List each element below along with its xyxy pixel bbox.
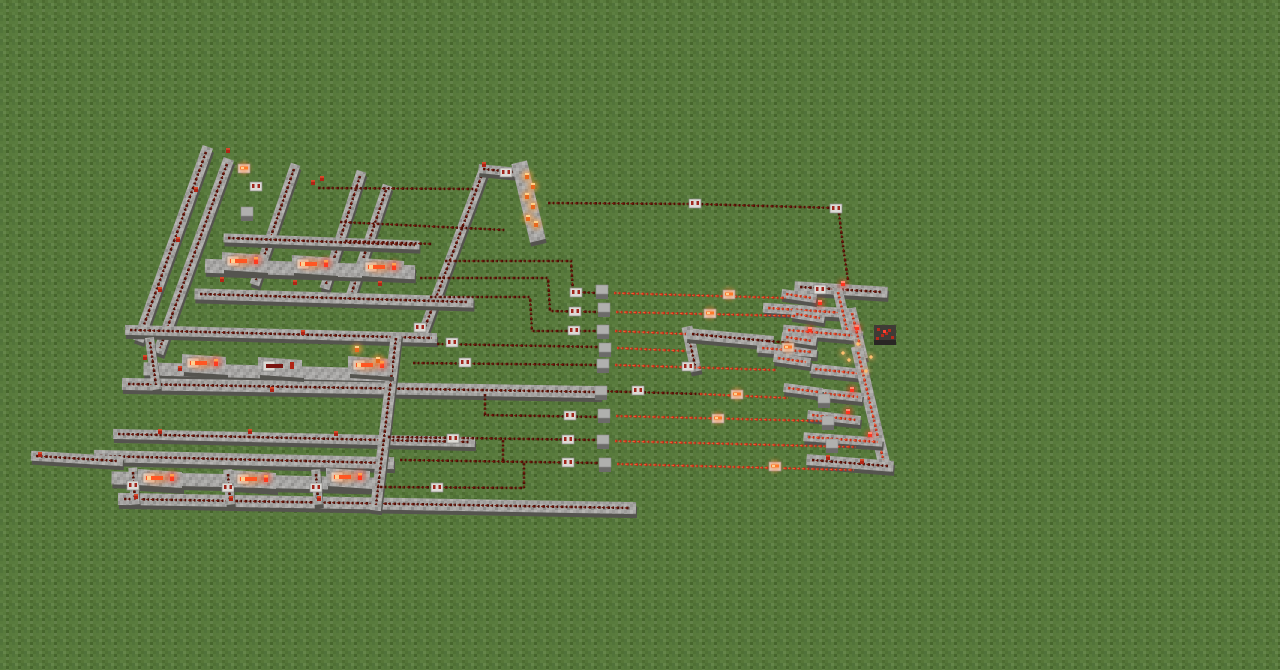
redstone-repeater [500, 168, 512, 177]
repeater-torch [822, 287, 825, 291]
torch-tip [826, 455, 830, 457]
stone-block-top [598, 303, 610, 312]
redstone-repeater [459, 358, 471, 367]
repeater-torch [258, 184, 261, 188]
stone-block-side [597, 334, 609, 339]
torch-flame [525, 173, 529, 175]
stone-block-side [818, 403, 830, 408]
repeater-torch [570, 328, 573, 332]
stone-path [150, 342, 157, 389]
stone-block [826, 439, 838, 453]
redstone-torch [301, 330, 305, 335]
torch-tip [293, 280, 297, 282]
stone-block [595, 386, 607, 400]
unit-torch-flame [231, 259, 235, 263]
redstone-torch [320, 176, 324, 181]
repeater-unit [222, 252, 268, 277]
redstone-torch [226, 148, 230, 153]
repeater-top [500, 168, 512, 177]
repeater-torch [570, 437, 573, 441]
torch-tip [194, 187, 198, 189]
glow-particle [867, 353, 875, 361]
repeater-torch [832, 206, 835, 210]
repeater-unit [360, 258, 406, 283]
repeater-torch [461, 360, 464, 364]
stone-path [200, 294, 469, 306]
redstone-torch [293, 280, 297, 285]
repeater-torch [455, 436, 458, 440]
repeater-torch [449, 436, 452, 440]
stone-block [599, 343, 611, 357]
redstone-repeater [447, 434, 459, 443]
redstone-torch [843, 407, 853, 417]
stone-block [599, 458, 611, 472]
repeater-torch [433, 485, 436, 489]
torch-tip [226, 148, 230, 150]
torch-tip [248, 429, 252, 431]
torch-tip [134, 494, 138, 496]
repeater-top [431, 483, 443, 492]
redstone-repeater [712, 412, 724, 424]
redstone-repeater [632, 386, 644, 395]
repeater-top [564, 411, 576, 420]
torch-flame [846, 409, 850, 411]
redstone-torch [860, 459, 864, 464]
unit-torch-bar-off [266, 364, 283, 368]
redstone-torch [158, 429, 162, 434]
repeater-top [814, 285, 826, 294]
torch-tip [178, 366, 182, 368]
stone-block-top [599, 343, 611, 352]
repeater-torch [571, 309, 574, 313]
torch-flame [526, 215, 530, 217]
ore-spot [877, 328, 880, 331]
repeater-torch [816, 287, 819, 291]
unit-torch-flame [191, 361, 195, 365]
repeater-torch [508, 170, 511, 174]
unit-side-torch-flame [170, 474, 174, 477]
torch-flame [531, 203, 535, 205]
repeater-unit [292, 255, 338, 280]
repeater-top [414, 323, 426, 332]
glow-particle [839, 349, 847, 357]
repeater-torch [416, 325, 419, 329]
torch-flame [850, 387, 854, 389]
redstone-torch [826, 455, 830, 460]
repeater-top [570, 288, 582, 297]
redstone-repeater [431, 483, 443, 492]
repeater-torch [838, 206, 841, 210]
torch-tip [378, 281, 382, 283]
torch-tip [143, 355, 147, 357]
unit-side-torch-flame [264, 475, 268, 478]
repeater-top [632, 386, 644, 395]
repeater-top [569, 307, 581, 316]
redstone-repeater [782, 341, 794, 353]
redstone-torch [522, 171, 533, 182]
unit-torch-flame [335, 475, 339, 479]
repeater-torch [566, 413, 569, 417]
unit-side-torch-flame [358, 473, 362, 476]
torch-flame [818, 300, 822, 302]
redstone-torch [378, 281, 382, 286]
torch-flame [868, 432, 872, 434]
stone-block [597, 435, 609, 449]
stone-path [778, 358, 807, 366]
stone-block-side [597, 368, 609, 373]
stone-block-side [596, 294, 608, 299]
repeater-torch [312, 485, 315, 489]
repeater-top [310, 483, 322, 492]
stone-block-top [597, 325, 609, 334]
repeater-torch-flame [707, 312, 710, 314]
glow-particle [845, 356, 853, 364]
unit-side-torch-flame [214, 359, 218, 362]
repeater-top [446, 338, 458, 347]
ore-side [874, 340, 896, 345]
redstone-repeater [562, 458, 574, 467]
repeater-torch [570, 460, 573, 464]
minecraft-world-canvas [0, 0, 1280, 670]
repeater-torch [578, 290, 581, 294]
unit-side-torch-flame [392, 263, 396, 266]
stone-block [597, 325, 609, 339]
unit-torch-flame [369, 265, 373, 269]
torch-flame [855, 325, 859, 327]
repeater-torch-flame [241, 167, 244, 169]
redstone-torch [847, 385, 857, 395]
redstone-repeater [830, 204, 842, 213]
game-viewport[interactable] [0, 0, 1280, 670]
torch-tip [482, 162, 486, 164]
redstone-repeater [769, 460, 781, 472]
redstone-torch [311, 180, 315, 185]
redstone-repeater [564, 411, 576, 420]
torch-tip [860, 459, 864, 461]
redstone-torch [317, 496, 321, 501]
repeater-unit [232, 470, 278, 495]
ore-spot [876, 337, 879, 340]
glow-particle [854, 340, 862, 348]
unit-torch-flame [357, 363, 361, 367]
stone-block [818, 394, 830, 408]
redstone-torch [482, 162, 486, 167]
torch-flame [808, 327, 812, 329]
torch-tip [158, 287, 162, 289]
repeater-torch [691, 201, 694, 205]
repeater-torch-flame [715, 417, 718, 419]
repeater-torch [439, 485, 442, 489]
stone-block-top [241, 207, 253, 216]
stone-block-side [598, 312, 610, 317]
repeater-top [459, 358, 471, 367]
repeater-unit [326, 468, 372, 493]
repeater-torch [576, 328, 579, 332]
torch-tip [158, 429, 162, 431]
unit-torch-flame [147, 476, 151, 480]
redstone-torch [865, 430, 875, 440]
stone-block-top [595, 386, 607, 395]
redstone-repeater [689, 199, 701, 208]
repeater-torch [634, 388, 637, 392]
torch-tip [320, 176, 324, 178]
redstone-repeater [723, 288, 735, 300]
redstone-ore-block [874, 325, 896, 345]
repeater-top [562, 458, 574, 467]
torch-flame [531, 183, 535, 185]
repeater-torch [690, 364, 693, 368]
repeater-top [447, 434, 459, 443]
repeater-torch [129, 483, 132, 487]
redstone-repeater [446, 338, 458, 347]
torch-flame [355, 346, 359, 348]
repeater-torch [572, 413, 575, 417]
redstone-torch [158, 287, 162, 292]
redstone-repeater [682, 362, 694, 371]
redstone-repeater [570, 288, 582, 297]
redstone-repeater [250, 182, 262, 191]
glow-particle [862, 367, 870, 375]
torch-tip [38, 452, 42, 454]
stone-block [598, 303, 610, 317]
redstone-torch [528, 181, 539, 192]
torch-tip [311, 180, 315, 182]
torch-tip [176, 237, 180, 239]
ore-spot [888, 329, 891, 332]
repeater-torch-flame [734, 393, 737, 395]
repeater-torch-flame [772, 465, 775, 467]
repeater-top [127, 481, 139, 490]
stone-block-side [597, 444, 609, 449]
torch-tip [229, 496, 233, 498]
repeater-torch [454, 340, 457, 344]
stone-block-side [598, 418, 610, 423]
repeater-torch [252, 184, 255, 188]
torch-flame [376, 357, 380, 359]
redstone-torch [334, 431, 338, 436]
repeater-torch [684, 364, 687, 368]
redstone-repeater [731, 388, 743, 400]
stone-block-top [599, 458, 611, 467]
torch-flame [841, 281, 845, 283]
repeater-top [568, 326, 580, 335]
unit-side-torch-flame [254, 257, 258, 260]
redstone-torch [134, 494, 138, 499]
redstone-torch [38, 452, 42, 457]
repeater-top [830, 204, 842, 213]
stone-block-top [597, 359, 609, 368]
repeater-torch-flame [726, 293, 729, 295]
stone-path [36, 456, 119, 465]
ore-spot-bright [883, 330, 886, 333]
redstone-torch [178, 366, 182, 371]
repeater-torch [577, 309, 580, 313]
repeater-top [689, 199, 701, 208]
redstone-torch [220, 277, 224, 282]
stone-path [128, 384, 596, 396]
redstone-torch [838, 279, 848, 289]
redstone-repeater [569, 307, 581, 316]
redstone-repeater [562, 435, 574, 444]
torch-tip [270, 387, 274, 389]
redstone-torch [194, 187, 198, 192]
unit-side-torch-flame [324, 260, 328, 263]
repeater-torch-flame [785, 346, 788, 348]
stone-block [822, 416, 834, 430]
stone-block [596, 285, 608, 299]
stone-block-side [595, 395, 607, 400]
repeater-torch [640, 388, 643, 392]
stone-path [796, 314, 821, 322]
redstone-torch [531, 219, 542, 230]
redstone-torch [852, 323, 862, 333]
repeater-torch [502, 170, 505, 174]
repeater-torch [564, 437, 567, 441]
stone-block-top [818, 394, 830, 403]
torch-tip [220, 277, 224, 279]
repeater-torch [230, 485, 233, 489]
unit-torch-flame [241, 477, 245, 481]
unit-torch-flame [301, 262, 305, 266]
stone-block-side [599, 352, 611, 357]
repeater-torch [135, 483, 138, 487]
ore-spot [891, 336, 894, 339]
redstone-repeater [814, 285, 826, 294]
stone-path [788, 388, 819, 396]
stone-block-top [822, 416, 834, 425]
redstone-torch [352, 344, 363, 355]
repeater-top [682, 362, 694, 371]
repeater-torch [448, 340, 451, 344]
repeater-unit [348, 356, 394, 381]
stone-block-side [599, 467, 611, 472]
redstone-torch [373, 355, 384, 366]
redstone-repeater [704, 307, 716, 319]
stone-block-side [241, 216, 253, 221]
redstone-torch [248, 429, 252, 434]
stone-block-top [826, 439, 838, 448]
torch-tip [301, 330, 305, 332]
stone-block [598, 409, 610, 423]
redstone-torch [522, 191, 533, 202]
repeater-top [562, 435, 574, 444]
redstone-torch [143, 355, 147, 360]
stone-block [241, 207, 253, 221]
torch-flame [534, 221, 538, 223]
redstone-torch [528, 201, 539, 212]
repeater-torch [224, 485, 227, 489]
repeater-torch [564, 460, 567, 464]
redstone-torch [270, 387, 274, 392]
repeater-unit [182, 354, 228, 379]
stone-block-top [597, 435, 609, 444]
torch-tip [317, 496, 321, 498]
redstone-repeater [568, 326, 580, 335]
repeater-torch [572, 290, 575, 294]
repeater-top [250, 182, 262, 191]
redstone-torch [805, 325, 815, 335]
redstone-repeater [238, 162, 250, 174]
redstone-torch [815, 298, 825, 308]
stone-path [100, 456, 389, 467]
repeater-torch [467, 360, 470, 364]
ore-spot [881, 334, 884, 337]
redstone-repeater [310, 483, 322, 492]
repeater-torch [422, 325, 425, 329]
stone-block-top [596, 285, 608, 294]
stone-block-side [822, 425, 834, 430]
torch-tip [334, 431, 338, 433]
stone-path [786, 294, 813, 302]
torch-flame [525, 193, 529, 195]
redstone-repeater [414, 323, 426, 332]
stone-block [597, 359, 609, 373]
repeater-unit [138, 469, 184, 494]
redstone-repeater [127, 481, 139, 490]
redstone-torch [176, 237, 180, 242]
repeater-torch [697, 201, 700, 205]
repeater-torch [318, 485, 321, 489]
stone-block-top [598, 409, 610, 418]
repeater-unit [258, 357, 304, 382]
redstone-torch [229, 496, 233, 501]
stone-block-side [826, 448, 838, 453]
unit-side-torch [290, 362, 294, 369]
